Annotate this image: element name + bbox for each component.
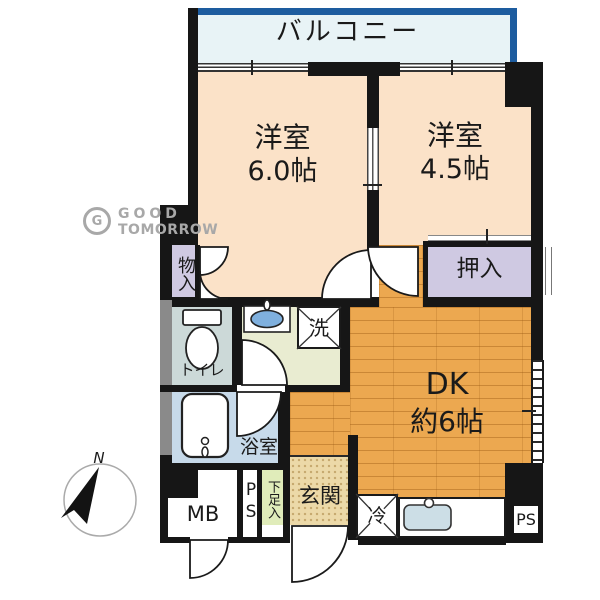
wall-concrete	[160, 300, 172, 455]
wall	[188, 63, 198, 210]
dk-lobby-wood	[379, 245, 428, 307]
wall	[428, 241, 531, 247]
meterbox-door-gap	[190, 537, 228, 543]
window-balcony-right	[400, 63, 505, 72]
room-a-name: 洋室	[198, 120, 367, 155]
meter-box-label: MB	[168, 501, 238, 527]
wall	[160, 245, 172, 302]
compass-needle	[61, 467, 99, 524]
pipe-space-right-label: PS	[514, 510, 538, 530]
room-b-size: 4.5帖	[379, 153, 531, 187]
line-oshiire-top	[428, 235, 531, 241]
dk-name: DK	[362, 366, 532, 404]
logo-line2: TOMORROW	[118, 222, 238, 240]
door-arc-meterbox	[190, 540, 228, 578]
dk-corridor-wood	[290, 392, 350, 463]
door-arc-entrance	[292, 526, 348, 582]
window-oshiire-outer	[545, 247, 552, 295]
refrigerator-label: 冷	[356, 505, 398, 529]
dk-size: 約6帖	[362, 404, 532, 439]
wall	[232, 307, 242, 385]
floor-plan: バルコニー 洋室 6.0帖 洋室 4.5帖 DK 約6帖 押入 物入 トイレ 洗…	[0, 0, 600, 600]
logo-line1: GOOD	[118, 206, 238, 224]
wall	[340, 297, 350, 392]
wall	[531, 247, 543, 297]
pipe-space-left-label: PS	[244, 479, 257, 525]
compass-icon	[61, 464, 136, 536]
wall	[358, 537, 506, 545]
wall	[160, 385, 237, 392]
shoe-cabinet-label: 下足入	[264, 474, 281, 524]
window-balcony-left	[198, 63, 308, 72]
oshiire-label: 押入	[428, 255, 531, 284]
wall	[188, 8, 198, 64]
shoe-cabinet-base	[262, 525, 283, 537]
wall	[531, 107, 543, 247]
window-room-divider	[367, 128, 379, 190]
entrance-label: 玄関	[290, 483, 350, 509]
washing-machine-label: 洗	[297, 316, 341, 341]
room-b-label: 洋室 4.5帖	[379, 118, 531, 187]
balcony-label: バルコニー	[238, 16, 458, 49]
wall-corner-top-right	[505, 62, 543, 107]
dk-label: DK 約6帖	[362, 366, 532, 439]
wall	[308, 62, 400, 76]
monoire-label: 物入	[175, 251, 195, 297]
room-b-name: 洋室	[379, 118, 531, 153]
wall	[367, 190, 379, 250]
logo-monogram-icon: G	[83, 207, 111, 235]
room-a-label: 洋室 6.0帖	[198, 120, 367, 189]
room-a-size: 6.0帖	[198, 155, 367, 189]
bathroom-label: 浴室	[228, 436, 290, 460]
toilet-label: トイレ	[172, 361, 232, 380]
wall	[423, 297, 543, 307]
window-dk-louver	[531, 360, 544, 463]
kitchen-counter	[398, 497, 506, 538]
compass-north-label: N	[86, 449, 112, 468]
